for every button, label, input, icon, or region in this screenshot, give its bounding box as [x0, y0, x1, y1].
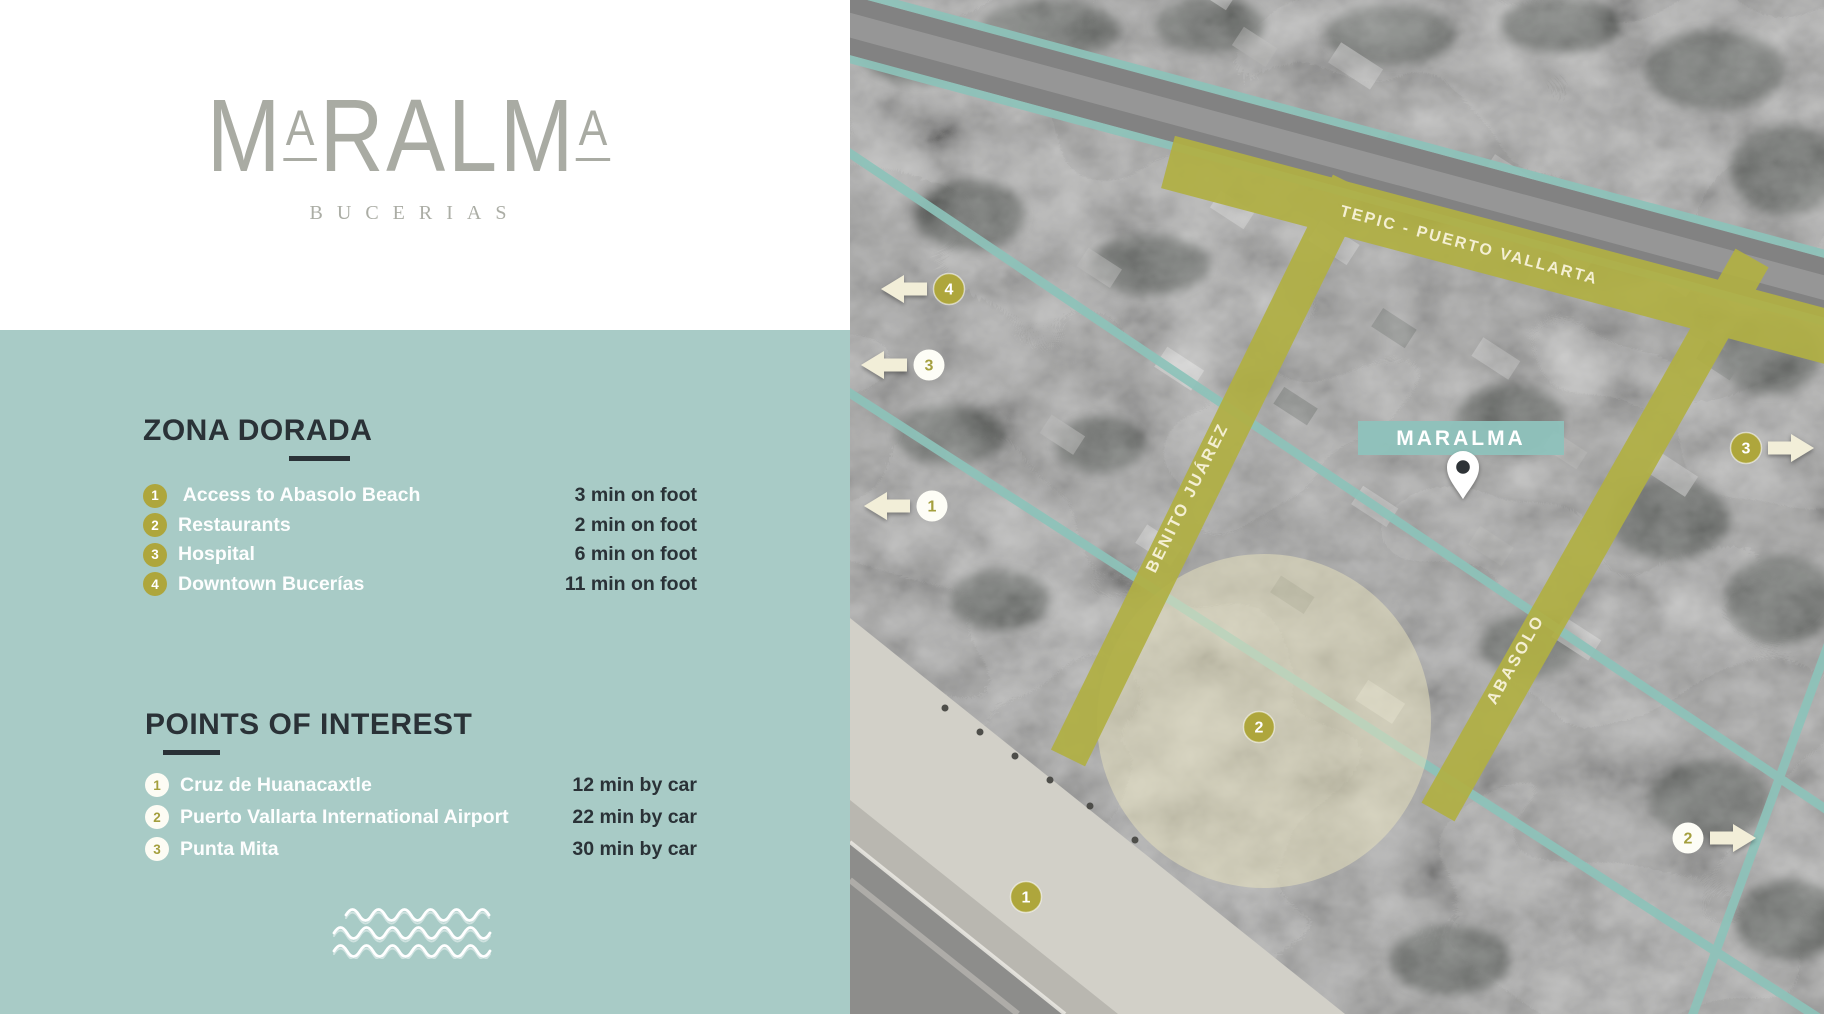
badge-number-icon: 3	[145, 837, 169, 861]
marker-number: 3	[925, 358, 934, 375]
zona-dorada-list: 1 Access to Abasolo Beach3 min on foot2R…	[143, 481, 697, 599]
badge-number-icon: 3	[143, 543, 167, 567]
logo-small-a: A	[576, 103, 610, 161]
badge-number-icon: 2	[145, 805, 169, 829]
zona-dorada-item-1: 1 Access to Abasolo Beach3 min on foot	[143, 481, 697, 511]
satellite-map: TEPIC - PUERTO VALLARTA BENITO JUÁREZ AB…	[850, 0, 1824, 1014]
logo-letter: M	[499, 84, 573, 187]
badge-number-icon: 1	[143, 484, 167, 508]
brochure-page: MARALMA BUCERIAS ZONA DORADA 1 Access to…	[0, 0, 1824, 1014]
marker-number: 2	[1255, 720, 1264, 737]
logo-letter: R	[319, 84, 383, 187]
maralma-map-label: MARALMA	[1396, 427, 1525, 450]
item-label: Access to Abasolo Beach	[178, 484, 420, 507]
item-travel-time: 22 min by car	[572, 806, 697, 829]
item-travel-time: 6 min on foot	[575, 543, 697, 566]
item-label: Punta Mita	[180, 838, 279, 861]
points-of-interest-item-2: 2Puerto Vallarta International Airport22…	[145, 801, 697, 833]
item-label: Puerto Vallarta International Airport	[180, 806, 509, 829]
marker-number: 1	[928, 499, 937, 516]
item-label: Hospital	[178, 543, 255, 566]
logo-subtitle: BUCERIAS	[96, 202, 720, 225]
badge-number-icon: 4	[143, 572, 167, 596]
marker-number: 3	[1742, 441, 1751, 458]
item-travel-time: 30 min by car	[572, 838, 697, 861]
zona-dorada-item-2: 2Restaurants2 min on foot	[143, 511, 697, 541]
logo-letter: M	[206, 84, 280, 187]
zona-dorada-item-4: 4Downtown Bucerías11 min on foot	[143, 570, 697, 600]
legend-panel: MARALMA BUCERIAS ZONA DORADA 1 Access to…	[0, 0, 850, 1014]
marker-number: 1	[1022, 890, 1031, 907]
logo-wordmark: MARALMA	[206, 84, 609, 187]
logo-letter: L	[447, 84, 496, 187]
marker-number: 2	[1684, 831, 1693, 848]
map-canvas: TEPIC - PUERTO VALLARTA BENITO JUÁREZ AB…	[850, 0, 1824, 1014]
points-of-interest-item-3: 3Punta Mita30 min by car	[145, 833, 697, 865]
item-travel-time: 11 min on foot	[565, 573, 697, 596]
badge-number-icon: 2	[143, 513, 167, 537]
item-label: Restaurants	[178, 514, 291, 537]
zona-dorada-title-underline	[289, 456, 350, 461]
points-of-interest-title: POINTS OF INTEREST	[145, 708, 472, 742]
zona-dorada-item-3: 3Hospital6 min on foot	[143, 540, 697, 570]
item-label: Downtown Bucerías	[178, 573, 364, 596]
waves-icon	[332, 903, 504, 959]
points-of-interest-list: 1Cruz de Huanacaxtle12 min by car2Puerto…	[145, 769, 697, 865]
logo-small-a: A	[283, 103, 317, 161]
marker-number: 4	[945, 282, 954, 299]
points-of-interest-title-underline	[163, 750, 220, 755]
item-travel-time: 3 min on foot	[575, 484, 697, 507]
item-travel-time: 12 min by car	[572, 774, 697, 797]
item-label: Cruz de Huanacaxtle	[180, 774, 372, 797]
location-pin-dot	[1456, 460, 1470, 474]
brand-logo: MARALMA BUCERIAS	[96, 84, 720, 225]
zona-dorada-marker-1: 1	[1011, 882, 1042, 913]
badge-number-icon: 1	[145, 773, 169, 797]
zona-dorada-marker-2: 2	[1244, 712, 1275, 743]
zona-dorada-title: ZONA DORADA	[143, 414, 372, 448]
points-of-interest-item-1: 1Cruz de Huanacaxtle12 min by car	[145, 769, 697, 801]
logo-letter: A	[386, 84, 445, 187]
item-travel-time: 2 min on foot	[575, 514, 697, 537]
